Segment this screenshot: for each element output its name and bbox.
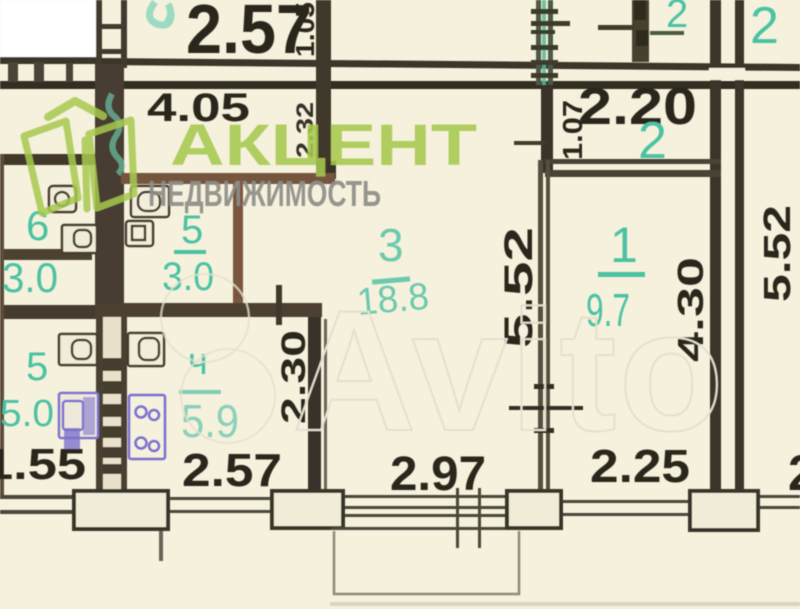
- svg-text:АКЦЕНТ: АКЦЕНТ: [170, 113, 477, 178]
- svg-text:2.57: 2.57: [182, 444, 282, 496]
- svg-text:НЕДВИЖИМОСТЬ: НЕДВИЖИМОСТЬ: [148, 173, 381, 214]
- svg-text:1.07: 1.07: [557, 100, 588, 160]
- svg-text:Avito: Avito: [292, 275, 726, 467]
- svg-text:5.52: 5.52: [757, 205, 799, 302]
- svg-text:3: 3: [378, 219, 404, 271]
- svg-text:5: 5: [181, 208, 203, 252]
- svg-text:3.0: 3.0: [2, 254, 58, 301]
- svg-text:2: 2: [788, 445, 800, 501]
- svg-text:2: 2: [638, 112, 667, 170]
- svg-text:1.05: 1.05: [290, 2, 320, 57]
- svg-text:2: 2: [666, 0, 688, 36]
- svg-text:5.0: 5.0: [0, 393, 54, 435]
- svg-text:2: 2: [750, 0, 779, 55]
- svg-text:5: 5: [26, 345, 48, 389]
- svg-text:1: 1: [610, 217, 638, 273]
- svg-text:1.55: 1.55: [0, 440, 86, 489]
